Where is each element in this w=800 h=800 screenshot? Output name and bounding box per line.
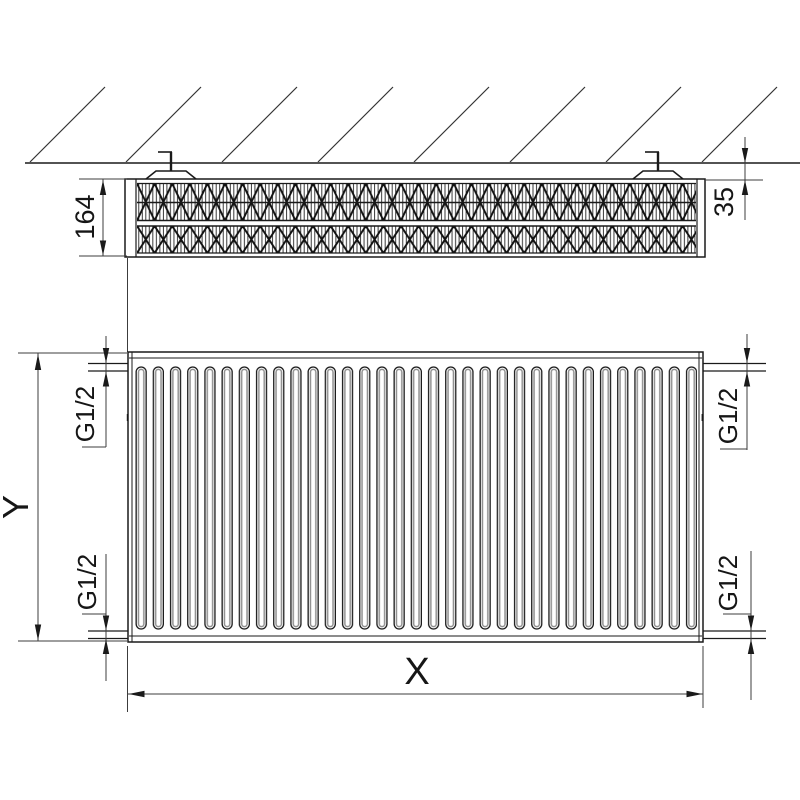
arrow-up-icon xyxy=(103,372,109,387)
arrow-down-icon xyxy=(748,616,754,631)
arrow-right-icon xyxy=(687,691,703,697)
arrow-up-icon xyxy=(748,639,754,654)
depth-value-label: 164 xyxy=(70,194,100,239)
dimension-thread-bottom-right: G1/2 xyxy=(713,551,754,700)
arrow-up-icon xyxy=(742,180,748,195)
arrow-left-icon xyxy=(129,691,145,697)
dimension-depth: 164 xyxy=(70,179,127,256)
left-edge-mark xyxy=(127,414,129,421)
wall-distance-value-label: 35 xyxy=(709,187,739,217)
arrow-down-icon xyxy=(103,348,109,363)
arrow-down-icon xyxy=(103,616,109,631)
dimension-height: Y xyxy=(0,353,127,641)
wall-section xyxy=(25,84,800,163)
connection-stub-bottom-left xyxy=(88,631,128,639)
thread-label-top-right: G1/2 xyxy=(713,388,743,444)
right-edge-mark xyxy=(702,414,704,421)
connection-stub-bottom-right xyxy=(703,631,766,639)
wall-hatching xyxy=(28,84,796,162)
arrow-down-icon xyxy=(744,348,750,363)
arrow-up-icon xyxy=(744,372,750,387)
arrow-up-icon xyxy=(100,180,106,195)
dimension-length: X xyxy=(128,646,704,712)
arrow-down-icon xyxy=(100,241,106,256)
drawing-svg: 164 35 xyxy=(0,0,800,800)
connection-stub-top-left xyxy=(88,364,128,372)
arrow-up-icon xyxy=(35,354,41,370)
radiator-front-view xyxy=(88,352,766,642)
dimension-thread-top-right: G1/2 xyxy=(713,334,750,450)
arrow-down-icon xyxy=(35,625,41,641)
thread-label-top-left: G1/2 xyxy=(70,386,100,442)
panel-grooves xyxy=(136,366,698,630)
thread-label-bottom-left: G1/2 xyxy=(72,554,102,610)
connection-stub-top-right xyxy=(703,364,766,372)
length-value-label: X xyxy=(404,651,429,693)
convector-fins xyxy=(137,184,696,254)
height-value-label: Y xyxy=(0,495,36,519)
radiator-top-view xyxy=(125,152,705,257)
thread-label-bottom-right: G1/2 xyxy=(713,555,743,611)
radiator-technical-drawing: 164 35 xyxy=(0,0,800,800)
dimension-thread-bottom-left: G1/2 xyxy=(72,554,109,681)
